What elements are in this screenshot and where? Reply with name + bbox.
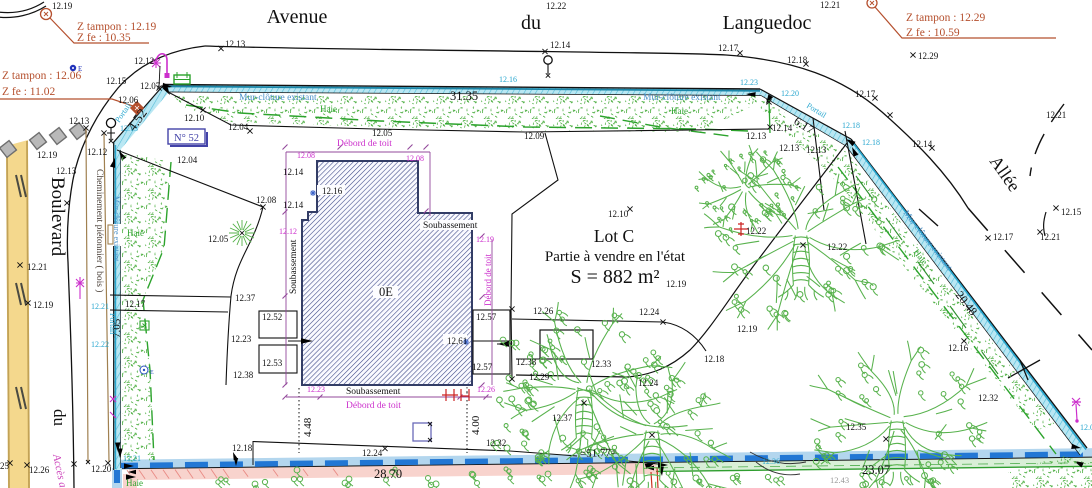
svg-text:23.07: 23.07 bbox=[862, 463, 890, 477]
svg-text:12.19: 12.19 bbox=[737, 324, 758, 334]
svg-text:12.06: 12.06 bbox=[118, 95, 139, 105]
svg-text:12.17: 12.17 bbox=[993, 232, 1014, 242]
svg-text:=51.77=: =51.77= bbox=[580, 447, 618, 460]
svg-text:12.17: 12.17 bbox=[125, 299, 146, 309]
svg-text:0E: 0E bbox=[379, 285, 393, 299]
svg-text:12.23: 12.23 bbox=[740, 78, 758, 87]
svg-text:N° 52: N° 52 bbox=[174, 133, 199, 144]
svg-text:Haie: Haie bbox=[127, 228, 144, 238]
svg-text:12.22: 12.22 bbox=[91, 340, 109, 349]
svg-text:12.12: 12.12 bbox=[134, 56, 154, 66]
svg-text:Cheminement piétonnier ( bois: Cheminement piétonnier ( bois ) bbox=[94, 169, 105, 292]
svg-text:12.20: 12.20 bbox=[781, 89, 799, 98]
svg-text:12.38: 12.38 bbox=[233, 370, 254, 380]
svg-text:12.18: 12.18 bbox=[232, 443, 253, 453]
svg-text:Haie: Haie bbox=[126, 478, 143, 488]
svg-text:12.18: 12.18 bbox=[704, 354, 725, 364]
svg-text:Z tampon : 12.29: Z tampon : 12.29 bbox=[906, 12, 985, 24]
svg-text:Accès a: Accès a bbox=[50, 452, 69, 488]
svg-text:12.32: 12.32 bbox=[978, 393, 998, 403]
svg-text:12.16: 12.16 bbox=[499, 75, 517, 84]
svg-text:12.13: 12.13 bbox=[806, 145, 827, 155]
svg-text:28.70: 28.70 bbox=[374, 467, 402, 481]
svg-text:12.19: 12.19 bbox=[37, 150, 58, 160]
svg-text:12.24: 12.24 bbox=[362, 448, 383, 458]
svg-text:12.15: 12.15 bbox=[106, 76, 127, 86]
svg-text:12.13: 12.13 bbox=[225, 39, 246, 49]
svg-text:Allée: Allée bbox=[986, 152, 1025, 195]
svg-text:Débord de toit: Débord de toit bbox=[483, 254, 493, 306]
svg-text:12.14: 12.14 bbox=[283, 200, 304, 210]
svg-text:Mur-clôture existant: Mur-clôture existant bbox=[239, 93, 317, 103]
svg-text:12.10: 12.10 bbox=[184, 113, 205, 123]
svg-text:12.21: 12.21 bbox=[123, 454, 141, 463]
svg-text:12.61: 12.61 bbox=[447, 336, 467, 346]
svg-text:12.19: 12.19 bbox=[33, 300, 54, 310]
svg-text:12.24: 12.24 bbox=[638, 378, 659, 388]
svg-text:12.18: 12.18 bbox=[842, 121, 860, 130]
svg-text:Haie: Haie bbox=[671, 106, 688, 116]
svg-text:12.14: 12.14 bbox=[550, 40, 571, 50]
svg-text:12.12: 12.12 bbox=[279, 227, 297, 236]
svg-text:Z fe : 10.35: Z fe : 10.35 bbox=[77, 32, 131, 44]
svg-text:12.13: 12.13 bbox=[746, 131, 767, 141]
svg-text:12.33: 12.33 bbox=[591, 359, 612, 369]
svg-text:Languedoc: Languedoc bbox=[723, 12, 812, 34]
svg-text:Avenue: Avenue bbox=[267, 6, 328, 28]
svg-text:12.19: 12.19 bbox=[476, 235, 494, 244]
svg-text:12.08: 12.08 bbox=[297, 151, 315, 160]
svg-text:12.21: 12.21 bbox=[820, 0, 840, 10]
svg-text:12.17: 12.17 bbox=[718, 43, 739, 53]
svg-text:12.14: 12.14 bbox=[912, 139, 933, 149]
svg-text:12.21: 12.21 bbox=[91, 302, 109, 311]
svg-text:12.35: 12.35 bbox=[846, 422, 867, 432]
svg-text:12.10: 12.10 bbox=[608, 209, 629, 219]
svg-text:12.17: 12.17 bbox=[855, 89, 876, 99]
svg-text:12.57: 12.57 bbox=[476, 312, 497, 322]
svg-text:Haie: Haie bbox=[320, 104, 337, 114]
svg-text:12.19: 12.19 bbox=[666, 279, 687, 289]
svg-text:12.57: 12.57 bbox=[472, 362, 493, 372]
svg-text:du: du bbox=[50, 409, 69, 427]
svg-text:12.22: 12.22 bbox=[827, 242, 847, 252]
svg-text:12.22: 12.22 bbox=[546, 1, 566, 11]
svg-text:12.36: 12.36 bbox=[762, 457, 780, 466]
svg-text:12.21: 12.21 bbox=[27, 262, 47, 272]
svg-text:Débord de toit: Débord de toit bbox=[346, 401, 401, 411]
svg-text:S = 882 m²: S = 882 m² bbox=[571, 266, 660, 288]
svg-text:12.14: 12.14 bbox=[772, 123, 793, 133]
svg-text:Mur-clôture existant: Mur-clôture existant bbox=[643, 93, 721, 103]
svg-text:12.13: 12.13 bbox=[69, 116, 90, 126]
svg-text:12.08: 12.08 bbox=[256, 195, 277, 205]
svg-text:Portail: Portail bbox=[108, 313, 117, 335]
svg-text:12.22: 12.22 bbox=[746, 226, 766, 236]
svg-text:Débord de toit: Débord de toit bbox=[337, 139, 392, 149]
svg-text:du: du bbox=[521, 12, 541, 34]
svg-text:Z fe : 10.59: Z fe : 10.59 bbox=[906, 27, 960, 39]
svg-text:4.00: 4.00 bbox=[470, 415, 482, 435]
svg-text:12.29: 12.29 bbox=[529, 372, 550, 382]
svg-text:12.07: 12.07 bbox=[140, 81, 161, 91]
svg-text:Boulevard: Boulevard bbox=[47, 177, 68, 257]
svg-text:12.23: 12.23 bbox=[231, 334, 252, 344]
svg-text:Lot C: Lot C bbox=[594, 226, 634, 246]
svg-text:12.13: 12.13 bbox=[779, 143, 800, 153]
svg-text:Partie à vendre en l'état: Partie à vendre en l'état bbox=[545, 249, 686, 265]
svg-text:12.43: 12.43 bbox=[830, 475, 849, 485]
svg-text:12.52: 12.52 bbox=[262, 312, 282, 322]
svg-text:12.0: 12.0 bbox=[1080, 423, 1092, 432]
svg-text:25: 25 bbox=[0, 461, 10, 471]
svg-text:Z tampon : 12.06: Z tampon : 12.06 bbox=[2, 70, 81, 82]
svg-text:12.21: 12.21 bbox=[1040, 232, 1060, 242]
svg-text:12.05: 12.05 bbox=[208, 234, 229, 244]
svg-text:12.16: 12.16 bbox=[322, 186, 343, 196]
svg-text:12.29: 12.29 bbox=[918, 51, 939, 61]
svg-text:12.37: 12.37 bbox=[235, 293, 256, 303]
svg-text:12.09: 12.09 bbox=[524, 131, 545, 141]
svg-text:Soubassement: Soubassement bbox=[289, 239, 299, 294]
svg-text:12.04: 12.04 bbox=[228, 122, 249, 132]
svg-text:12.14: 12.14 bbox=[283, 167, 304, 177]
svg-text:12.15: 12.15 bbox=[1061, 207, 1082, 217]
svg-text:12.05: 12.05 bbox=[372, 128, 393, 138]
svg-text:Z fe : 11.02: Z fe : 11.02 bbox=[2, 86, 55, 98]
svg-text:12.20: 12.20 bbox=[91, 464, 112, 474]
svg-text:12.08: 12.08 bbox=[406, 154, 424, 163]
svg-text:12.23: 12.23 bbox=[307, 385, 325, 394]
svg-text:12.13: 12.13 bbox=[56, 166, 77, 176]
svg-text:Soubassement: Soubassement bbox=[423, 221, 478, 231]
svg-text:12.38: 12.38 bbox=[516, 357, 537, 367]
svg-text:Mur-clôture existant: Mur-clôture existant bbox=[112, 196, 121, 262]
svg-text:12.26: 12.26 bbox=[477, 385, 495, 394]
svg-text:31.35: 31.35 bbox=[450, 89, 478, 103]
svg-text:12.53: 12.53 bbox=[262, 358, 283, 368]
svg-text:12.13: 12.13 bbox=[120, 124, 138, 133]
svg-text:4.48: 4.48 bbox=[302, 417, 314, 437]
svg-text:12.32: 12.32 bbox=[486, 438, 506, 448]
svg-text:12.12: 12.12 bbox=[87, 147, 107, 157]
svg-text:12.16: 12.16 bbox=[948, 343, 969, 353]
svg-text:12.24: 12.24 bbox=[639, 307, 660, 317]
svg-text:Soubassement: Soubassement bbox=[346, 387, 401, 397]
svg-text:12.19: 12.19 bbox=[52, 1, 73, 11]
svg-text:12.26: 12.26 bbox=[29, 465, 50, 475]
svg-text:12.26: 12.26 bbox=[533, 306, 554, 316]
svg-text:12.04: 12.04 bbox=[177, 155, 198, 165]
svg-text:12.18: 12.18 bbox=[787, 55, 808, 65]
svg-text:E: E bbox=[150, 370, 154, 376]
svg-text:12.18: 12.18 bbox=[862, 138, 880, 147]
svg-text:12.37: 12.37 bbox=[552, 413, 573, 423]
svg-text:12.21: 12.21 bbox=[1046, 110, 1066, 120]
